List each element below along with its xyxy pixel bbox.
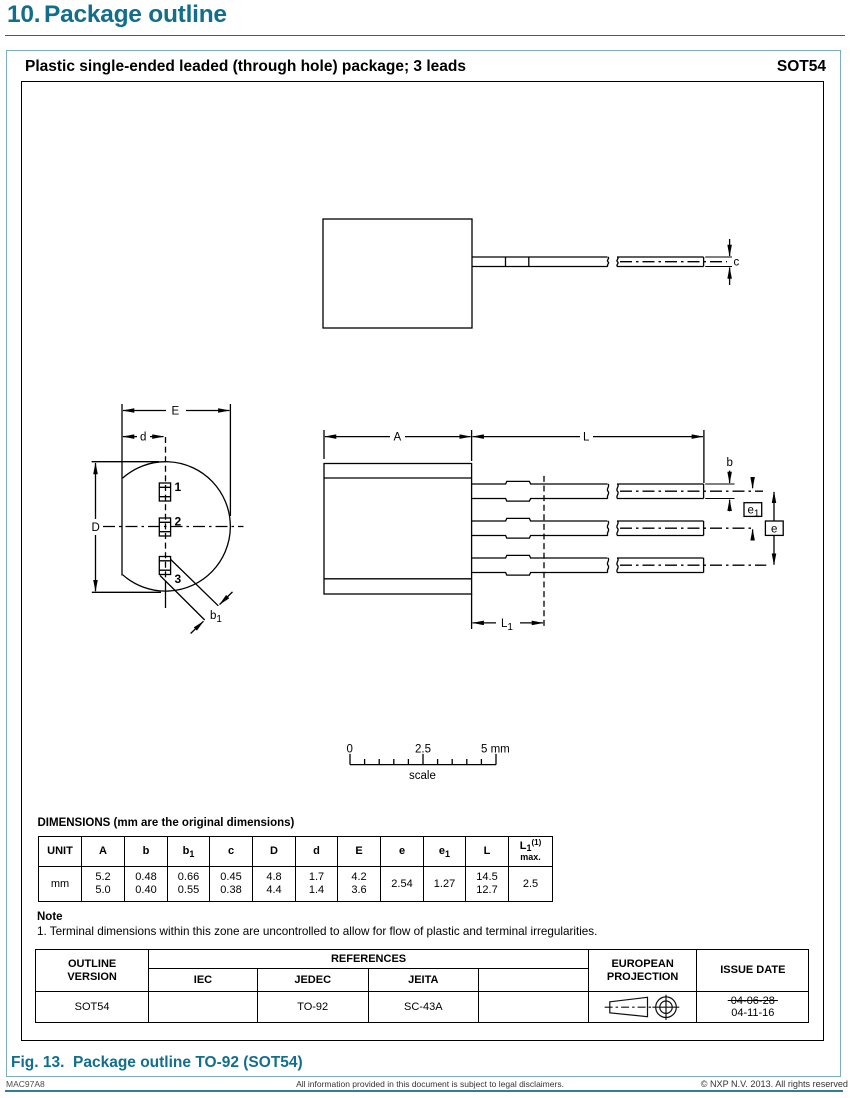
svg-text:b1: b1 [210,610,222,625]
svg-text:2: 2 [175,515,182,529]
svg-text:e: e [771,524,777,536]
svg-text:3: 3 [175,572,182,586]
svg-text:d: d [140,432,146,444]
svg-text:2.5: 2.5 [415,744,431,756]
svg-text:5 mm: 5 mm [481,744,510,756]
svg-text:1: 1 [175,480,182,494]
svg-text:A: A [394,432,402,444]
svg-text:L1: L1 [501,618,513,633]
svg-text:b: b [727,457,733,469]
svg-text:c: c [734,257,740,269]
svg-text:E: E [172,406,180,418]
svg-text:scale: scale [409,770,436,782]
svg-text:0: 0 [347,744,353,756]
svg-text:D: D [92,522,100,534]
svg-text:L: L [583,432,590,444]
